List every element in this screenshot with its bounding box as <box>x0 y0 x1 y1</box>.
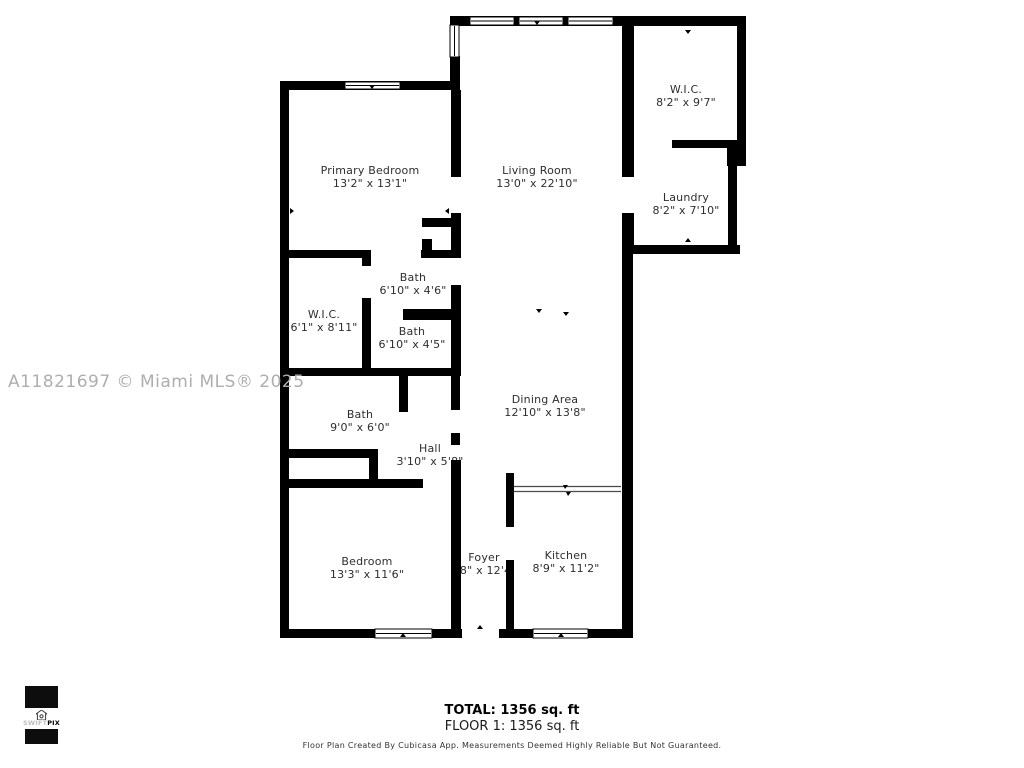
room-dims: 6'10" x 4'5" <box>378 338 445 351</box>
room-dims: 8'9" x 11'2" <box>532 562 599 575</box>
room-label-kitchen: Kitchen 8'9" x 11'2" <box>532 549 599 575</box>
area-summary: TOTAL: 1356 sq. ft FLOOR 1: 1356 sq. ft <box>0 703 1024 734</box>
room-name: W.I.C. <box>656 83 716 96</box>
logo-text-pix: PIX <box>47 719 60 727</box>
room-dims: 3'10" x 5'8" <box>396 455 463 468</box>
room-dims: '8" x 12'4 <box>457 564 512 577</box>
room-name: Bedroom <box>330 555 404 568</box>
room-name: Kitchen <box>532 549 599 562</box>
room-dims: 13'3" x 11'6" <box>330 568 404 581</box>
floor-plan: Primary Bedroom 13'2" x 13'1" Living Roo… <box>0 0 1024 768</box>
room-dims: 12'10" x 13'8" <box>504 406 585 419</box>
room-name: Bath <box>379 271 446 284</box>
room-name: W.I.C. <box>290 308 357 321</box>
room-name: Living Room <box>496 164 577 177</box>
logo-text-swift: SWIFT <box>23 719 47 727</box>
room-label-bedroom: Bedroom 13'3" x 11'6" <box>330 555 404 581</box>
disclaimer-text: Floor Plan Created By Cubicasa App. Meas… <box>0 741 1024 750</box>
room-name: Foyer <box>457 551 512 564</box>
room-label-foyer: Foyer '8" x 12'4 <box>457 551 512 577</box>
room-label-living-room: Living Room 13'0" x 22'10" <box>496 164 577 190</box>
room-name: Bath <box>378 325 445 338</box>
logo-top-block <box>25 686 58 708</box>
room-name: Primary Bedroom <box>321 164 420 177</box>
room-label-primary-bedroom: Primary Bedroom 13'2" x 13'1" <box>321 164 420 190</box>
room-label-wic-2: W.I.C. 6'1" x 8'11" <box>290 308 357 334</box>
room-name: Dining Area <box>504 393 585 406</box>
room-label-bath-2: Bath 6'10" x 4'5" <box>378 325 445 351</box>
room-dims: 6'10" x 4'6" <box>379 284 446 297</box>
floor-area-text: FLOOR 1: 1356 sq. ft <box>0 719 1024 734</box>
room-name: Hall <box>396 442 463 455</box>
room-dims: 13'0" x 22'10" <box>496 177 577 190</box>
mls-watermark: A11821697 © Miami MLS® 2025 <box>8 372 305 392</box>
room-label-dining-area: Dining Area 12'10" x 13'8" <box>504 393 585 419</box>
room-dims: 9'0" x 6'0" <box>330 421 390 434</box>
room-label-bath-1: Bath 6'10" x 4'6" <box>379 271 446 297</box>
swiftpix-logo: SWIFTPIX <box>25 686 58 744</box>
room-label-bath-3: Bath 9'0" x 6'0" <box>330 408 390 434</box>
room-label-wic-1: W.I.C. 8'2" x 9'7" <box>656 83 716 109</box>
room-name: Laundry <box>652 191 719 204</box>
room-dims: 8'2" x 7'10" <box>652 204 719 217</box>
room-dims: 8'2" x 9'7" <box>656 96 716 109</box>
logo-bottom-block <box>25 729 58 744</box>
room-label-hall: Hall 3'10" x 5'8" <box>396 442 463 468</box>
room-dims: 6'1" x 8'11" <box>290 321 357 334</box>
logo-wordmark: SWIFTPIX <box>23 720 60 727</box>
total-area-text: TOTAL: 1356 sq. ft <box>0 703 1024 718</box>
room-dims: 13'2" x 13'1" <box>321 177 420 190</box>
room-name: Bath <box>330 408 390 421</box>
room-label-laundry: Laundry 8'2" x 7'10" <box>652 191 719 217</box>
logo-mid: SWIFTPIX <box>25 708 58 729</box>
